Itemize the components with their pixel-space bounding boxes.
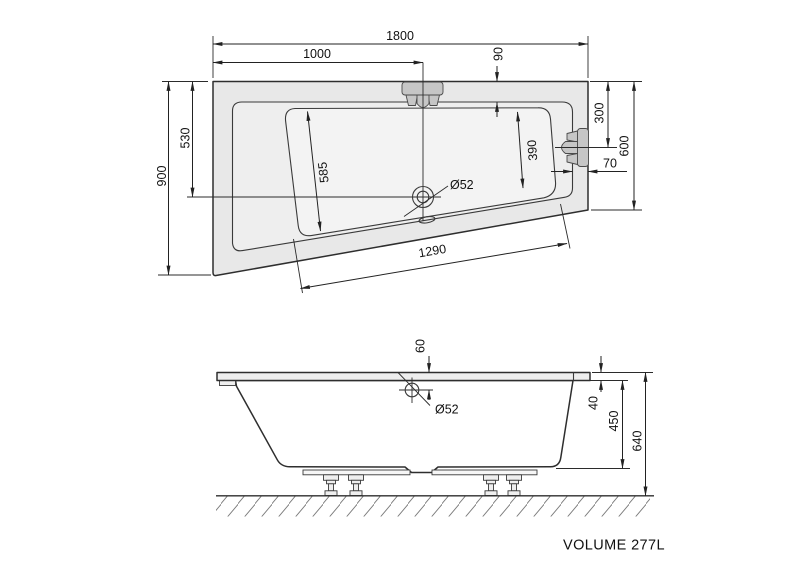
technical-drawing-page: 1800 1000 90 900 530 585 390 xyxy=(0,0,800,571)
dim-overall-length: 1800 xyxy=(386,29,414,43)
dim-basin-diagonal-edge: 1290 xyxy=(417,242,447,260)
top-view: 1800 1000 90 900 530 585 390 xyxy=(155,29,642,293)
foot-collar xyxy=(327,480,336,484)
dim-basin-left-edge: 585 xyxy=(315,161,331,183)
adjustable-foot xyxy=(484,475,499,496)
dim-drain-offset-y: 530 xyxy=(179,128,193,149)
volume-label: VOLUME 277L xyxy=(563,538,665,554)
dim-basin-right-edge: 390 xyxy=(525,139,540,161)
ground-hatch xyxy=(216,497,650,517)
tub-plan-outline xyxy=(213,82,588,276)
dim-overall-height: 640 xyxy=(631,431,645,452)
bracket-wedge-right xyxy=(428,95,440,106)
dim-rim-width-right: 70 xyxy=(603,157,617,171)
foot-cap xyxy=(484,475,499,481)
tub-body-profile xyxy=(236,381,574,473)
foot-stem xyxy=(354,484,359,491)
bathtub-drawing: 1800 1000 90 900 530 585 390 xyxy=(0,0,800,571)
dim-drain-offset-x: 1000 xyxy=(303,47,331,61)
dim-drain-diameter-side: Ø52 xyxy=(435,403,459,417)
rim-slab xyxy=(217,373,590,381)
foot-base xyxy=(325,491,337,496)
dim-bracket-offset: 300 xyxy=(593,103,607,124)
foot-stem xyxy=(512,484,517,491)
dim-overall-width-right: 600 xyxy=(618,136,632,157)
foot-cap xyxy=(507,475,522,481)
foot-stem xyxy=(489,484,494,491)
adjustable-foot xyxy=(507,475,522,496)
dim-rim-thickness: 40 xyxy=(587,396,601,410)
headrest-bracket-top xyxy=(402,82,443,108)
side-view: Ø52 60 40 450 640 xyxy=(216,339,654,516)
support-rail-left xyxy=(303,470,410,475)
dim-drain-depth: 60 xyxy=(414,339,428,353)
ground xyxy=(216,496,654,517)
foot-collar xyxy=(352,480,361,484)
foot-cap xyxy=(349,475,364,481)
mounting-frame xyxy=(303,470,537,496)
foot-cap xyxy=(324,475,339,481)
foot-collar xyxy=(487,480,496,484)
adjustable-foot xyxy=(349,475,364,496)
dim-rim-width-top: 90 xyxy=(492,47,506,61)
dim-body-height: 450 xyxy=(607,411,621,432)
bracket-bar xyxy=(402,82,443,95)
foot-stem xyxy=(329,484,334,491)
foot-base xyxy=(350,491,362,496)
foot-base xyxy=(485,491,497,496)
adjustable-foot xyxy=(324,475,339,496)
dim-overall-width-left: 900 xyxy=(155,166,169,187)
foot-collar xyxy=(510,480,519,484)
dim-drain-diameter: Ø52 xyxy=(450,178,474,192)
support-rail-right xyxy=(432,470,537,475)
bracket-wedge-left xyxy=(406,95,418,106)
foot-base xyxy=(508,491,520,496)
